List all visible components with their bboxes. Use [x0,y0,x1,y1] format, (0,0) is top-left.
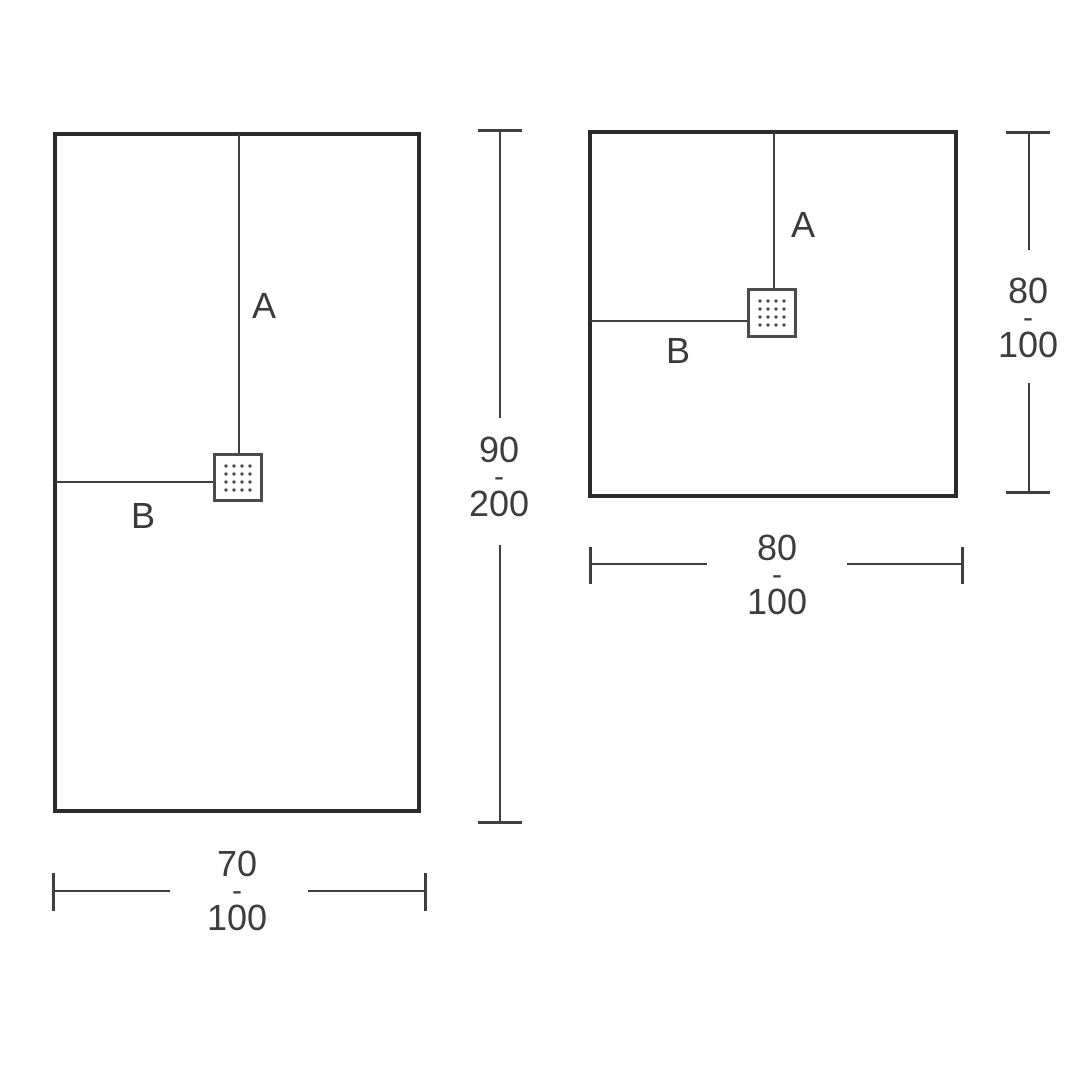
square-tray-drain-square [747,288,797,338]
height-max-value: 200 [469,487,529,520]
rect-tray-height-dim-line-upper [499,130,501,418]
drain-grate-pattern [220,460,256,495]
square-tray-width-dim-right-tick [961,547,964,584]
square-tray-width-dim-line-right [847,563,963,565]
square-tray-height-dim-line-lower [1028,383,1030,493]
square-tray-height-dim-bottom-tick [1006,491,1050,494]
rect-tray-width-dim-text: 70 - 100 [187,847,287,934]
drain-grate-pattern [754,295,790,331]
width-max-value: 100 [207,901,267,934]
technical-drawing-canvas: A B 90 - 200 70 - 100 A B 80 - 100 80 [0,0,1080,1080]
rect-tray-height-dim-line-lower [499,545,501,823]
rect-tray-width-dim-line-right [308,890,426,892]
height-max-value: 100 [998,328,1058,361]
rect-tray-drain-offset-line-vertical [238,134,240,483]
rect-tray-height-dim-text: 90 - 200 [449,433,549,520]
square-tray-height-dim-text: 80 - 100 [978,274,1078,361]
rect-tray-label-b: B [131,497,155,535]
rect-tray-label-a: A [252,287,276,325]
square-tray-width-dim-left-tick [589,547,592,584]
width-max-value: 100 [747,585,807,618]
rect-tray-width-dim-right-tick [424,873,427,911]
rect-tray-drain-square [213,453,263,502]
square-tray-width-dim-line-left [591,563,707,565]
square-tray-width-dim-text: 80 - 100 [727,531,827,618]
rect-tray-width-dim-line-left [54,890,170,892]
square-tray-height-dim-line-upper [1028,132,1030,250]
rect-tray-height-dim-bottom-tick [478,821,522,824]
square-tray-label-a: A [791,206,815,244]
rect-tray-width-dim-left-tick [52,873,55,911]
square-tray-label-b: B [666,332,690,370]
